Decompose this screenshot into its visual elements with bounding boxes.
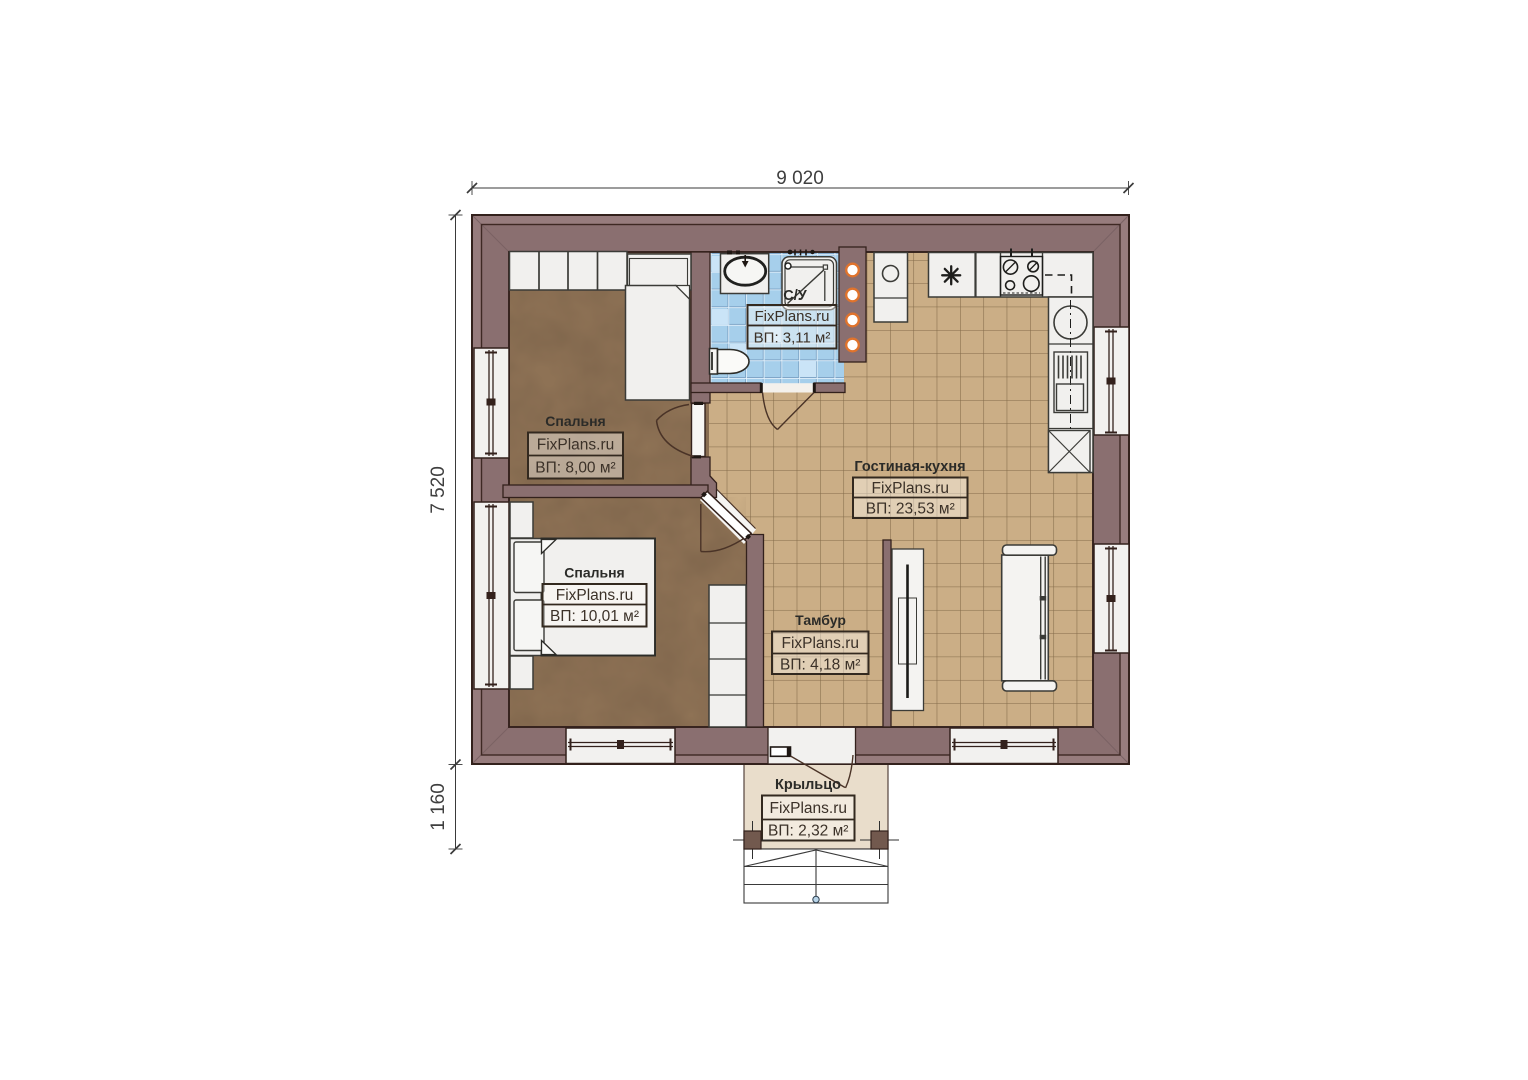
svg-text:FixPlans.ru: FixPlans.ru — [556, 587, 634, 604]
svg-text:FixPlans.ru: FixPlans.ru — [781, 635, 859, 652]
svg-text:9 020: 9 020 — [776, 168, 824, 189]
svg-text:Тамбур: Тамбур — [795, 612, 846, 628]
svg-text:ВП: 10,01 м²: ВП: 10,01 м² — [550, 608, 639, 625]
svg-text:FixPlans.ru: FixPlans.ru — [754, 308, 829, 325]
svg-text:ВП: 3,11 м²: ВП: 3,11 м² — [754, 330, 831, 347]
svg-text:ВП: 23,53 м²: ВП: 23,53 м² — [866, 500, 955, 517]
svg-text:1 160: 1 160 — [428, 783, 449, 831]
svg-text:Спальня: Спальня — [564, 565, 624, 581]
svg-text:ВП: 2,32 м²: ВП: 2,32 м² — [768, 823, 848, 840]
svg-text:FixPlans.ru: FixPlans.ru — [871, 480, 949, 497]
svg-text:ВП: 8,00 м²: ВП: 8,00 м² — [535, 460, 615, 477]
svg-text:ВП: 4,18 м²: ВП: 4,18 м² — [780, 656, 860, 673]
svg-text:Крыльцо: Крыльцо — [775, 777, 841, 793]
svg-text:FixPlans.ru: FixPlans.ru — [537, 437, 615, 454]
svg-text:FixPlans.ru: FixPlans.ru — [769, 800, 847, 817]
svg-text:7 520: 7 520 — [428, 466, 449, 514]
svg-text:Гостиная-кухня: Гостиная-кухня — [854, 459, 965, 475]
svg-text:С/У: С/У — [783, 288, 808, 304]
svg-text:Спальня: Спальня — [545, 413, 605, 429]
